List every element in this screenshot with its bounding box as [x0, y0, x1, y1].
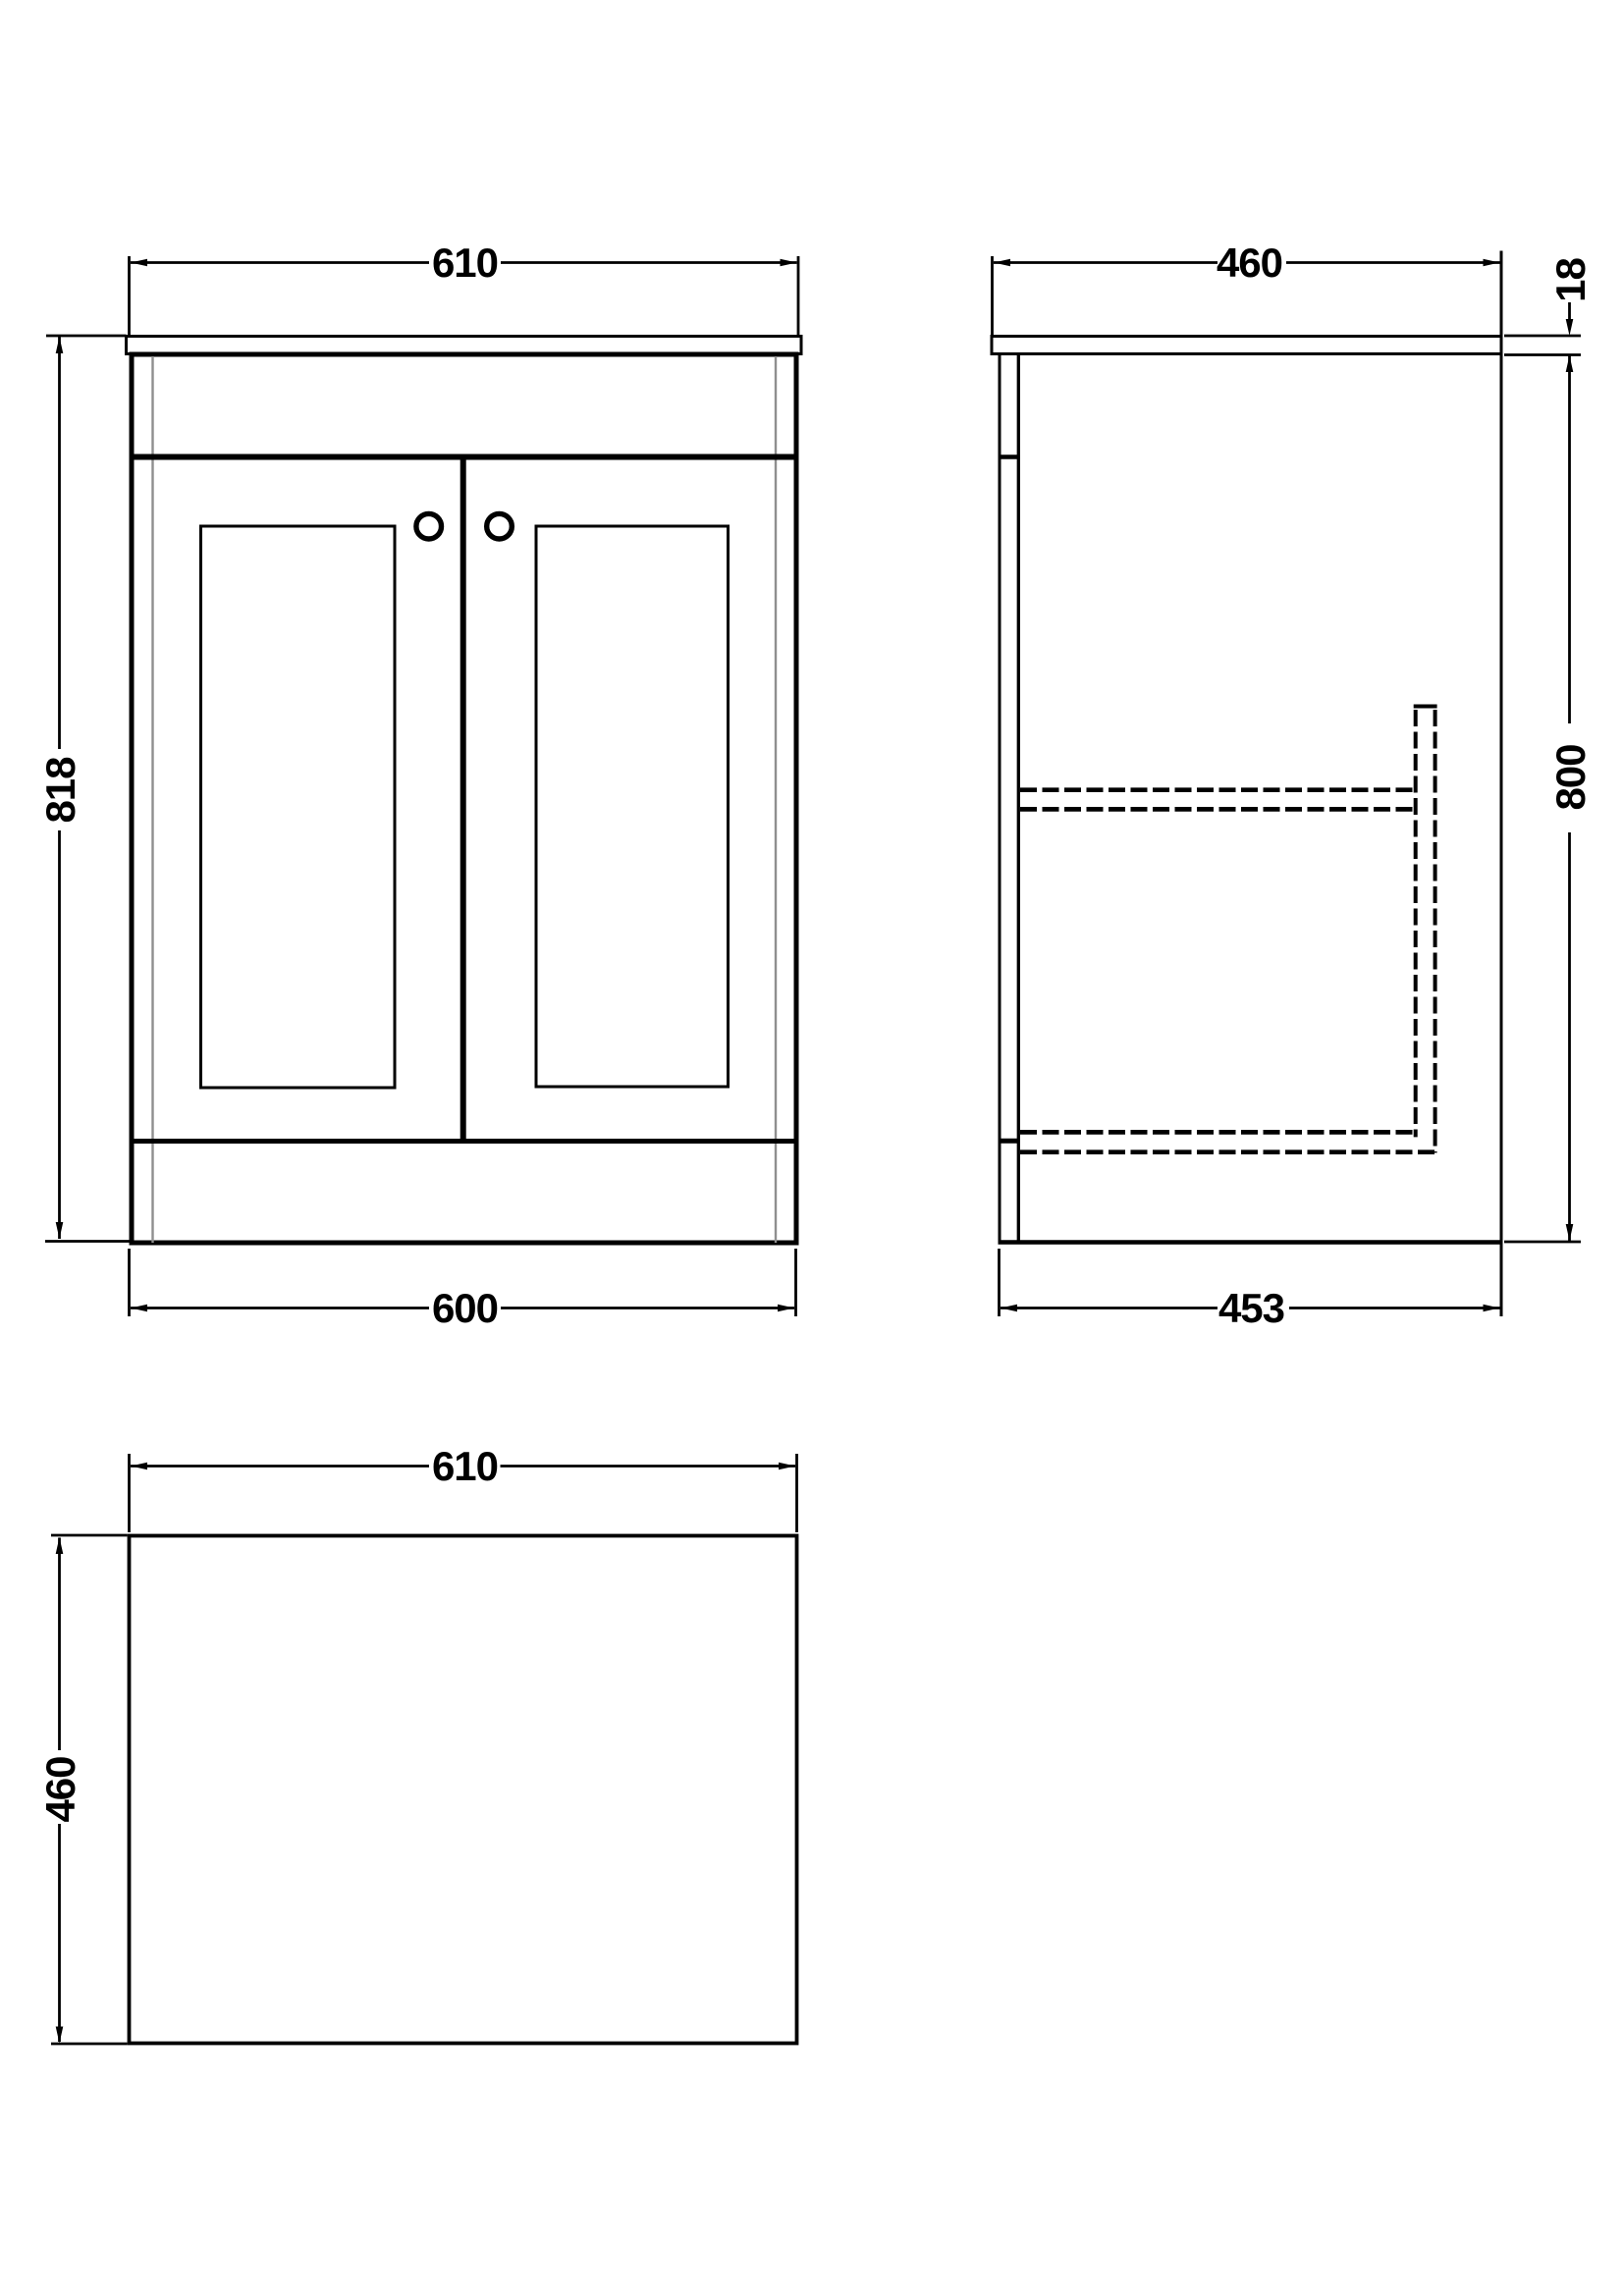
svg-text:18: 18: [1547, 258, 1594, 302]
svg-text:610: 610: [432, 240, 498, 286]
svg-text:460: 460: [37, 1756, 83, 1822]
svg-text:460: 460: [1217, 240, 1282, 286]
svg-text:610: 610: [432, 1443, 498, 1489]
svg-text:453: 453: [1218, 1285, 1284, 1331]
svg-text:818: 818: [37, 757, 83, 824]
svg-text:800: 800: [1547, 744, 1594, 810]
svg-text:600: 600: [432, 1285, 498, 1331]
